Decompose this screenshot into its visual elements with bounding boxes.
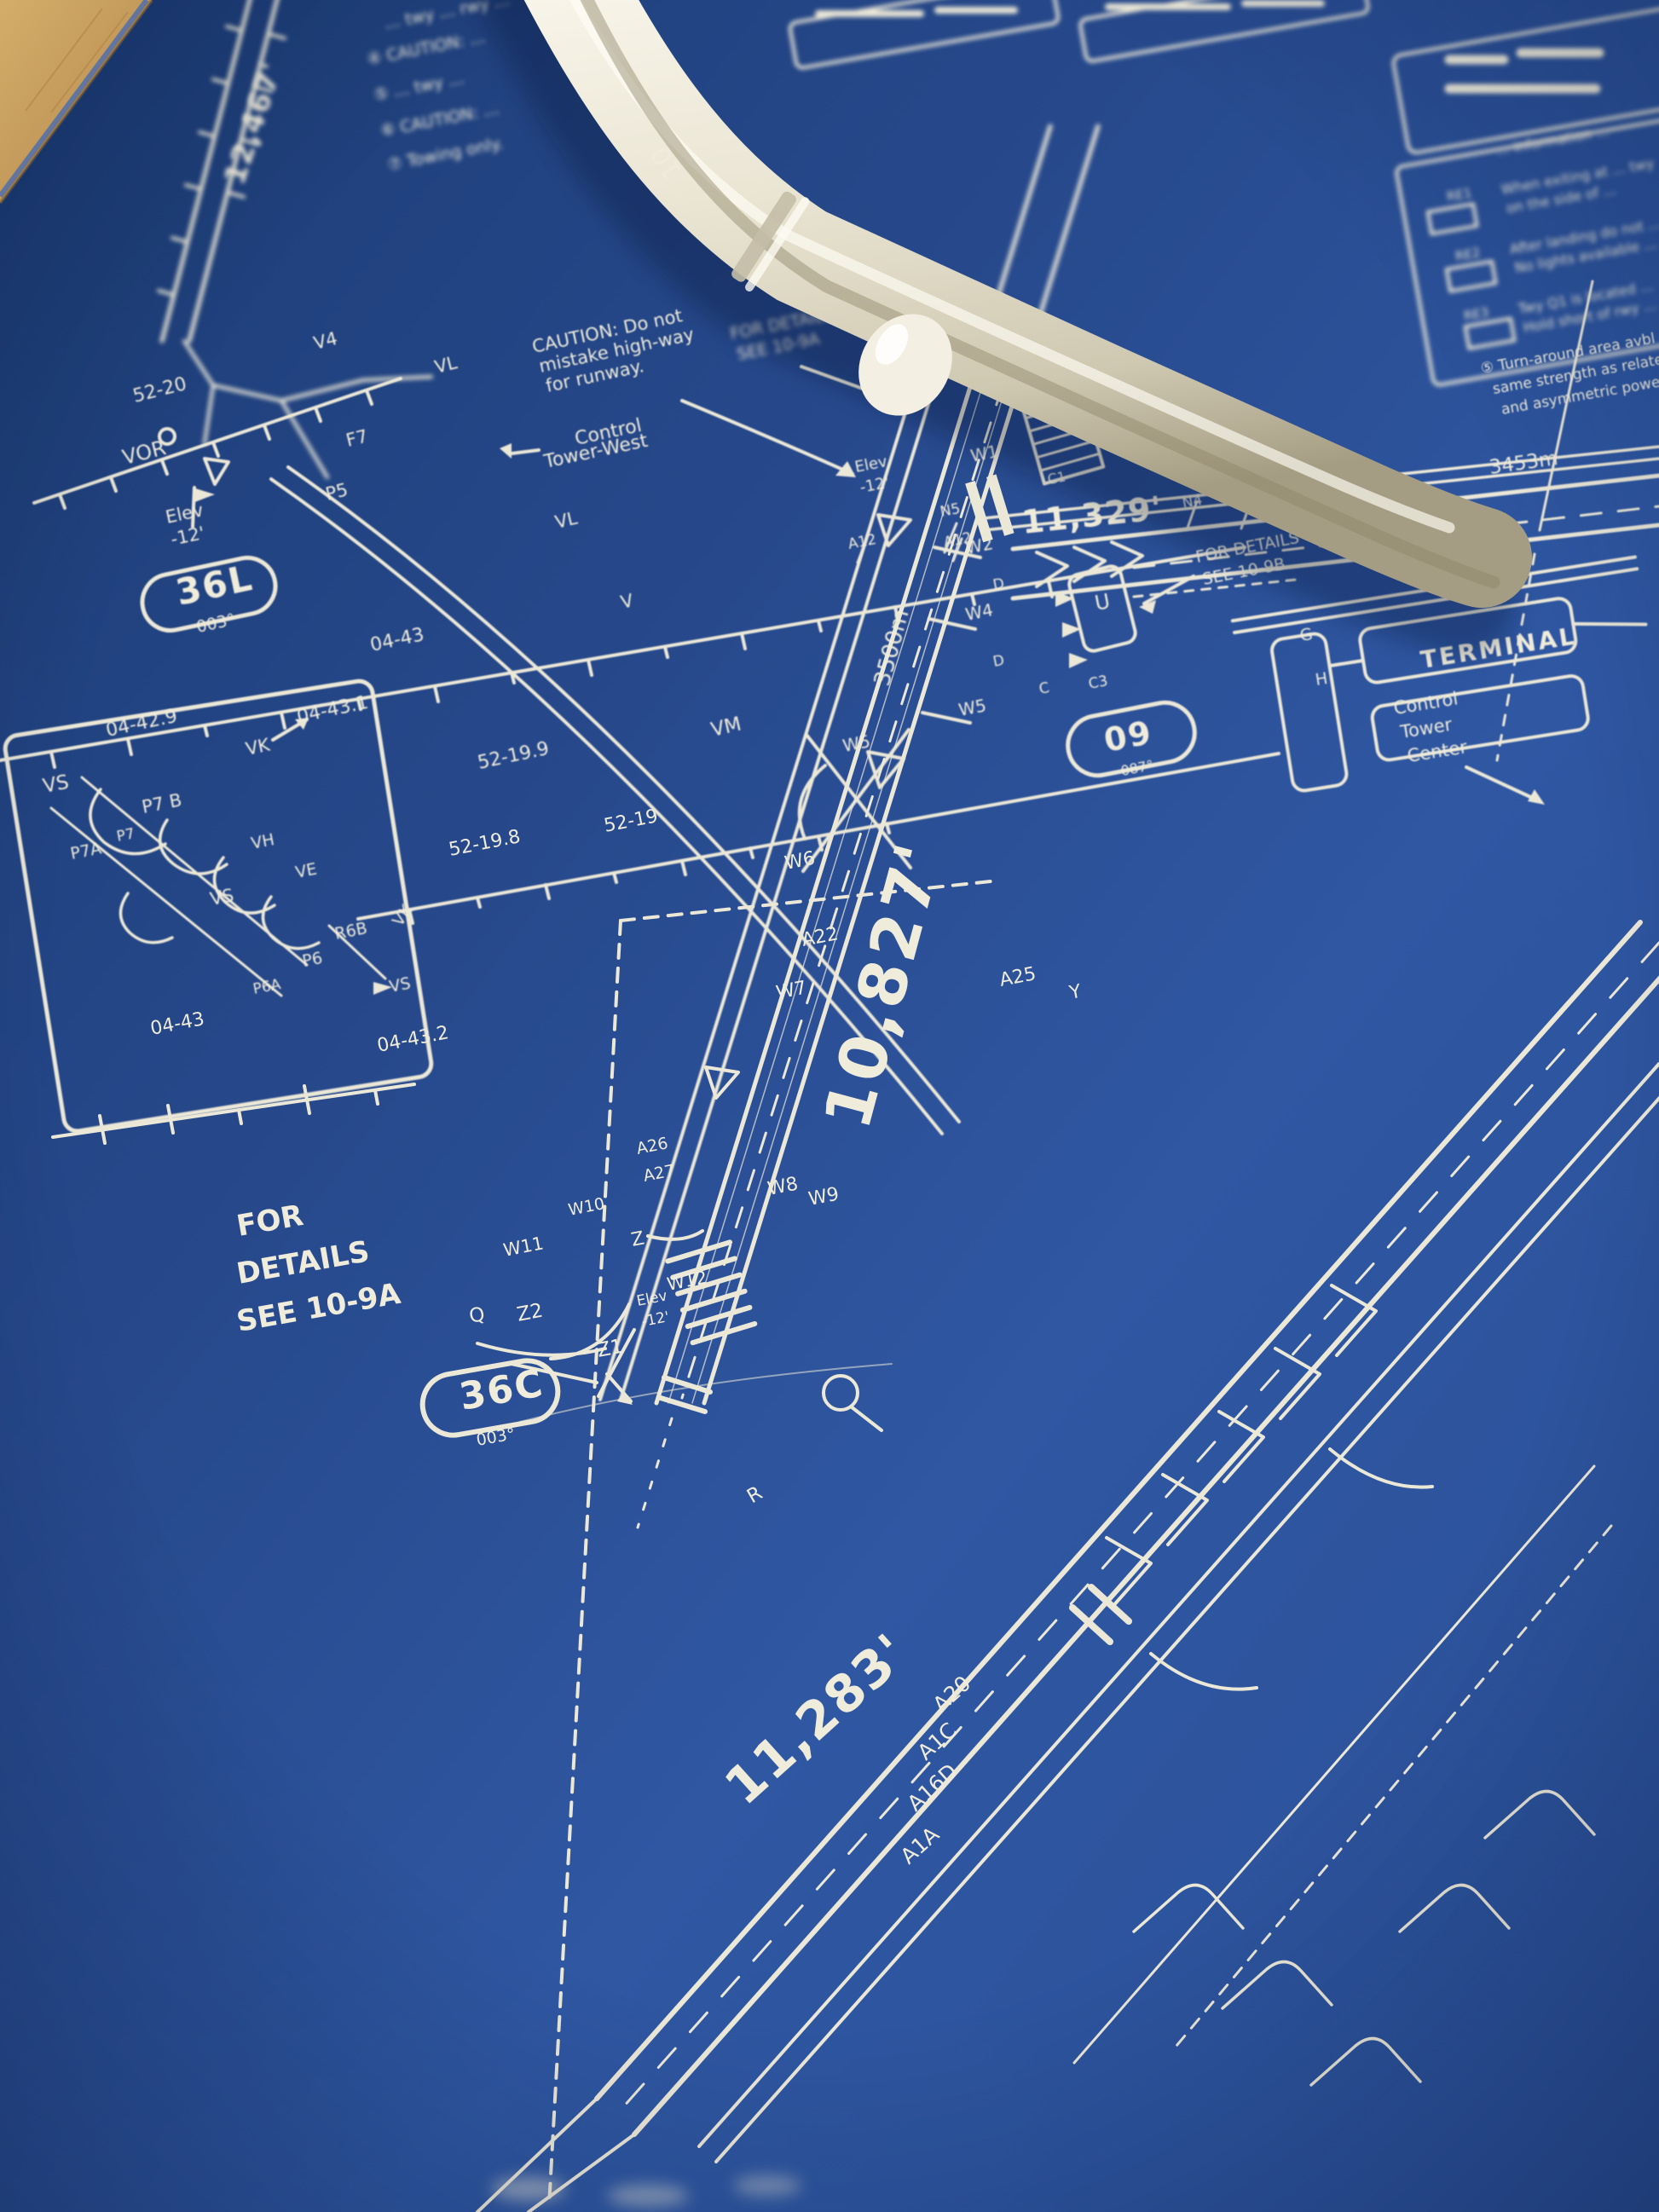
blueprint-canvas: 52-19.852-1904-4304-43.210,827'W6A22W7A2…	[0, 0, 1659, 2212]
photo-of-blueprint: 52-19.852-1904-4304-43.210,827'W6A22W7A2…	[0, 0, 1659, 2212]
